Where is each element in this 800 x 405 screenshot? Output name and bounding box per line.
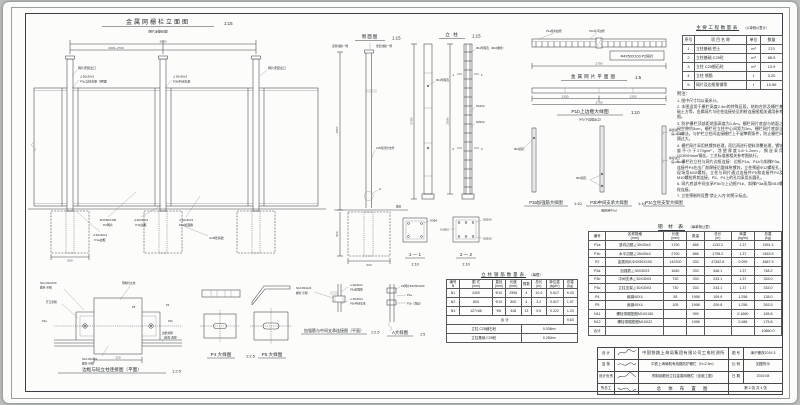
steel-header-cell: 数量: [687, 232, 704, 241]
steel-row: P1b水平边框∠30x30x327006661798.21.372463.5: [589, 249, 782, 258]
steel-table-title: 钢 材 表: [658, 225, 685, 231]
svg-text:P3a加强筋: P3a加强筋: [179, 222, 193, 227]
p3b-hole-label: Φ10圆孔: [576, 176, 587, 180]
cut-2-right: 2: [481, 147, 483, 151]
rebar-header-cell: 根数: [521, 280, 531, 289]
p1b-detail-title: P1b上边框大样图: [571, 108, 609, 115]
cut-2-left: 2: [452, 147, 454, 151]
svg-text:∠30x30x3: ∠30x30x3: [179, 218, 193, 222]
steel-row: N11螺栓带帽垫圈M10X1509990.1660165.8: [589, 310, 782, 319]
sections: N3Φ6 1 — 1 1:10 N2Φ10 N1Φ10 N2Φ10 2 — 2 …: [395, 214, 495, 272]
dim-side-height: 1800: [335, 126, 339, 133]
mesh-plan-title: 金属网片平面图: [571, 73, 617, 80]
label-n2-top: N2Φ10: [483, 218, 492, 222]
lead-signature: [615, 371, 639, 383]
rebar-row: N2800Φ1080043.20.6171.97: [447, 298, 578, 307]
page-info: 第 2 张 共 4 张: [729, 383, 783, 395]
label-n2: N2Φ10: [476, 120, 485, 124]
fig-no-label: 图 号: [729, 348, 744, 360]
connection-title: 边框与砼立柱连接图（平面）: [82, 366, 142, 373]
section-cut-marks: [457, 74, 479, 148]
steel-header-cell: 编号: [589, 232, 606, 241]
svg-text:P4: P4: [166, 303, 170, 307]
fig-no-value: 津沪栅改2019-3: [744, 348, 783, 360]
svg-text:∠30x30x3: ∠30x30x3: [93, 233, 107, 237]
stiffener-connection: N12 M10x22 螺栓·带帽 ∠30x30x3 P3a加强筋 ∠30x30x…: [294, 278, 382, 346]
steel-row: P5扁钢40X41051998209.81.256263.5: [589, 301, 782, 310]
dim-p1b-half2: 1350: [630, 94, 637, 98]
note-1: 1. 图中尺寸均以毫米计。: [677, 98, 783, 103]
quantity-row: 5网片及边框角钢等t10.86: [683, 81, 783, 90]
dim-column-h2: 2590: [446, 117, 450, 124]
svg-text:P5: P5: [132, 305, 136, 309]
steel-row: P1a竖向边框∠30x30x317006661132.21.371551.1: [589, 241, 782, 250]
rebar-table: 立柱钢筋数量表 （每根） 编号 N图 式 (mm)直径 (mm)长度 (mm)根…: [446, 272, 578, 343]
svg-text:∠30x30x3: ∠30x30x3: [173, 75, 187, 79]
label-near-side: 靠近线路一侧: [376, 44, 392, 48]
a-detail-title: A大样图: [392, 329, 409, 336]
p4-title: P4 大样图: [211, 351, 232, 358]
quantity-header-cell: 项 目 名 称: [695, 36, 747, 45]
lead-label: 设计负责: [598, 371, 615, 383]
steel-row: P3a加强筋∠30X30X31640333546.11.37748.2: [589, 267, 782, 276]
quantity-table-title: 主要工程数量表: [696, 25, 739, 31]
svg-text:P1b边框: P1b边框: [135, 222, 146, 227]
svg-text:Φ4X50X100: Φ4X50X100: [100, 218, 117, 222]
svg-text:开口垫圈: 开口垫圈: [46, 300, 57, 304]
designer-label: 设 计: [598, 348, 615, 360]
label-n3: N3Φ6: [430, 219, 438, 223]
label-n1-left: N1Φ10: [440, 228, 449, 232]
p1b-detail-subtitle: （P1b下边框反之）: [577, 117, 603, 122]
project-name: 中铁上海局既有线路防护栅栏（H=2.3m）: [639, 359, 729, 371]
svg-text:边框角钢: 边框角钢: [162, 331, 173, 335]
svg-text:P1a: P1a: [407, 293, 412, 297]
mesh-plan-scale: 1:5: [635, 75, 642, 80]
connection-labels: N11 M10x150 螺栓·带帽 预制砼立柱 开口垫圈 P5 P4 P1a P…: [40, 281, 179, 366]
label-bracket: C25现浇砼支托: [376, 146, 395, 150]
connection-scale: 1:2.5: [172, 369, 182, 374]
svg-text:P3a加强筋: P3a加强筋: [350, 288, 363, 292]
note-3: 3. 防护栅栏顶部距地面高度为1.8m，栅栏网片底部与地面之间空隙约5cm，栅栏…: [677, 121, 783, 142]
rebar-cage: [464, 44, 472, 194]
label-hole-bolt: Φ12预留孔（M10螺栓）: [476, 46, 505, 50]
notes-heading: 附注：: [677, 91, 783, 97]
svg-text:P1b（焊接）: P1b（焊接）: [407, 302, 423, 306]
rebar-row: N3127×66Φ6426135.50.2221.23: [447, 307, 578, 316]
svg-text:螺栓·带帽: 螺栓·带帽: [296, 291, 308, 295]
rebar-header-cell: 总长 (m): [532, 280, 546, 289]
quantity-table-unit: （以单侧公里计）: [743, 26, 769, 30]
quantity-header-cell: 序号: [683, 36, 695, 45]
steel-header-cell: 长度 (mm): [664, 232, 687, 241]
rebar-footer-2: 立柱基础 C25砼 0.250m³: [447, 334, 578, 343]
quantity-header-cell: 数量: [761, 36, 783, 45]
connection-detail: N11 M10x150 螺栓·带帽 预制砼立柱 开口垫圈 P5 P4 P1a P…: [36, 276, 198, 376]
quantity-row: 1立柱基础 挖土m³270: [683, 45, 783, 54]
svg-text:∠30x30x3: ∠30x30x3: [80, 75, 94, 79]
a-detail-scale: 1:5: [420, 333, 425, 337]
scale-value: 如图所示: [744, 359, 783, 371]
p1b-detail-scale: 1:10: [631, 110, 640, 115]
rebar-footer-1: 立柱 C25细石砼 0.036m³: [447, 325, 578, 334]
quantity-row: 4立柱 钢筋t3.20: [683, 72, 783, 81]
foundations: [51, 211, 275, 253]
break-symbol: [31, 142, 36, 152]
elevation-title: 金属网栅栏立面图: [126, 18, 190, 26]
dim-foundation: 600: [67, 259, 72, 263]
svg-text:螺栓·带帽: 螺栓·带帽: [40, 286, 52, 290]
date-label: 日 期: [729, 371, 744, 383]
svg-text:∠30x30x3: ∠30x30x3: [350, 297, 363, 301]
steel-row: P4扁钢40X4551998109.91.256138.0: [589, 292, 782, 301]
side-view-title: 侧面图: [362, 33, 379, 40]
quantity-table: 主要工程数量表 （以单侧公里计） 序号项 目 名 称单位数量 1立柱基础 挖土m…: [682, 16, 783, 90]
a-detail: P2网片Φ4X50X100 P1a P1b（焊接） A大样图 1:5: [378, 276, 444, 340]
section1-scale: 1:10: [411, 262, 419, 267]
side-view-scale: 1:15: [392, 36, 401, 41]
a-detail-labels: P2网片Φ4X50X100 P1a P1b（焊接）: [395, 284, 425, 306]
left-bracket: [76, 312, 94, 340]
quantity-row: 3立柱 C25细石砼m³13.9: [683, 63, 783, 72]
quantity-row: 2立柱基础 C25砼m³85.9: [683, 54, 783, 63]
label-n2-bot: N2Φ10: [483, 237, 492, 241]
sheet-name: 总 体 布 置 图: [639, 383, 729, 395]
svg-text:∠30x30x3: ∠30x30x3: [350, 283, 363, 287]
p3-details: Φ10圆孔 P3a加强筋大样图 1:10 Φ10圆孔 P3b中间支承大样图 （结…: [512, 122, 688, 216]
steel-row: 合计10860.0: [589, 327, 782, 336]
svg-text:P3c立柱支架（预埋）: P3c立柱支架（预埋）: [80, 79, 109, 84]
steel-header-cell: 总重 (kg): [754, 232, 781, 241]
steel-row: P3b中间支承∠30X30X3730333243.11.37333.0: [589, 275, 782, 284]
scale-label: 比 例: [729, 359, 744, 371]
rebar-table-unit: （每根）: [529, 273, 543, 277]
notes-block: 附注： 1. 图中尺寸均以毫米计。 2. 本图适用于栅栏高度2.3m的特殊区段，…: [677, 91, 783, 222]
rebar-header-cell: 长度 (mm): [505, 280, 521, 289]
checker-label: 复 核: [598, 359, 615, 371]
rebar-header-cell: 单位重 (kg/m): [546, 280, 563, 289]
label-p1b-frame: P1b水平边框: [589, 29, 605, 33]
label-ground: 路肩: [396, 205, 402, 209]
svg-text:P3b中间支承: P3b中间支承: [350, 302, 366, 306]
date-value: 2019.08: [744, 371, 783, 383]
stiffener-title: 加强筋与中间支承连接图（平面）: [304, 327, 364, 333]
p3a-scale: 1:10: [574, 201, 583, 206]
p45-scale: 1:2.5: [246, 354, 256, 359]
svg-text:P1a: P1a: [42, 319, 47, 323]
quantity-header-cell: 单位: [747, 36, 761, 45]
subject-name: 预制钢筋砼立柱金属网栅栏（含施工图）: [639, 371, 729, 383]
label-hole: Φ12预留孔: [436, 78, 450, 82]
steel-table: 钢 材 表 （每单侧公里） 编号名称规格 (mm)长度 (mm)数量总长 (m)…: [588, 223, 782, 336]
dim-side-depth: 500: [335, 231, 339, 236]
p3b-title: P3b中间支承大样图: [590, 199, 628, 206]
angle-pictorial: [252, 286, 290, 305]
svg-text:（双面·满焊）: （双面·满焊）: [162, 336, 179, 340]
p4-plate: [200, 310, 240, 342]
cut-1-right: 1: [481, 73, 483, 77]
steel-row: N12螺栓带帽垫圈M10X2219980.088175.8: [589, 318, 782, 327]
svg-text:C25砼基础: C25砼基础: [209, 235, 224, 240]
dim-column-h1: 2750: [410, 117, 414, 124]
note-2: 2. 本图适用于栅栏高度2.3m的特殊区段，结构台阶及栅栏基础土方等，金属网片与…: [677, 104, 783, 120]
dim-panel: 2400~2700: [108, 46, 124, 50]
dim-side-width: 600: [366, 263, 371, 267]
p3b-subtitle: （结构参P3c）: [599, 208, 619, 213]
dim-mesh-total: 2700: [596, 62, 603, 66]
label-p1a-frame: P1a竖向边框: [546, 29, 562, 33]
p3a-hole-label: Φ10圆孔: [514, 147, 525, 151]
p5-title: P5 大样图: [262, 351, 283, 358]
elevation-subtitle: （网片涂塑处理）: [146, 29, 170, 34]
note-6: 6. 网片底部中间支承P3b与上边框P1b、斜撑P3a采用M10螺栓连接。: [677, 181, 783, 191]
note-4: 4. 栅栏网片采用热镀锌处理，而后再进行塑料涂覆处理，镀锌量不小于270g/m²…: [677, 143, 783, 159]
steel-header-cell: 名称规格 (mm): [606, 232, 664, 241]
column-title: 立 柱: [445, 31, 458, 38]
elevation-view: 金属网栅栏立面图 1:15 （网片涂塑处理） 3000 2400~2700: [28, 14, 328, 279]
p4-p5-details: P4 大样图 1:2.5 P5 大样图: [198, 276, 298, 378]
drawing-sheet-page: 金属网栅栏立面图 1:15 （网片涂塑处理） 3000 2400~2700: [0, 0, 800, 405]
p3a-title: P3a加强筋大样图: [529, 199, 562, 206]
rebar-row: N12400Φ102596410.40.6176.43: [447, 289, 578, 298]
svg-text:P1b: P1b: [168, 319, 173, 323]
section2-title: 2 — 2: [460, 252, 473, 257]
rebar-header-cell: 编号 N: [447, 280, 460, 289]
svg-text:∠30x30x3: ∠30x30x3: [134, 218, 148, 222]
company-name: 中国铁路上海局集团有限公司工电检测所: [639, 348, 729, 360]
section1-title: 1 — 1: [409, 252, 422, 257]
column-view: 立 柱 1:15 Φ12预留孔 Φ12预留孔（M10螺栓） N1Φ10 N2Φ1…: [408, 28, 496, 216]
steel-row: P2金属网片Φ4X50X10014220033347352.60.0994687…: [589, 258, 782, 267]
svg-text:N11 M10x150: N11 M10x150: [40, 281, 57, 285]
dim-total: 3000: [160, 40, 167, 44]
mesh-plan: P1a竖向边框 P1b水平边框 Φ4X50X100 P2网片 2700 金属网片…: [524, 26, 674, 122]
steel-row: P3c立柱支架∠30X30X3730333243.11.37333.0: [589, 284, 782, 293]
svg-text:N12 M10x22: N12 M10x22: [296, 286, 312, 290]
svg-text:P2网片Φ4X50X100: P2网片Φ4X50X100: [401, 284, 425, 288]
rebar-header-cell: 图 式 (mm): [460, 280, 493, 289]
checker-signature: [615, 359, 639, 371]
title-block: 设 计 中国铁路上海局集团有限公司工电检测所 图 号 津沪栅改2019-3 复 …: [597, 347, 782, 391]
svg-text:N12 M10x22: N12 M10x22: [82, 357, 98, 361]
chief-label: 所总工: [598, 383, 615, 395]
label-n1: N1Φ10: [476, 104, 485, 108]
rebar-total-row: 合 计 9.63: [447, 316, 578, 325]
svg-text:P2网片: P2网片: [103, 222, 113, 227]
stiffener-labels: N12 M10x22 螺栓·带帽 ∠30x30x3 P3a加强筋 ∠30x30x…: [296, 283, 366, 306]
svg-text:P1a边框: P1a边框: [94, 237, 105, 242]
cut-1-left: 1: [452, 73, 454, 77]
column-scale: 1:15: [472, 34, 481, 39]
dim-p1b-half1: 1350: [562, 94, 569, 98]
section2-scale: 1:10: [462, 262, 470, 267]
svg-text:网片安装企口: 网片安装企口: [78, 65, 96, 70]
dim-conn: 120: [115, 356, 120, 360]
label-far-side: 远离线路一侧: [332, 44, 348, 48]
note-7: 7. 立柱预制时设置“禁止入内”的警示标志。: [677, 193, 783, 198]
steel-header-cell: 总长 (m): [704, 232, 731, 241]
note-5: 5. 栅栏砼立柱与网片边框连接：边框P1a、P1b与斜撑P3a、连接件P4在出厂…: [677, 159, 783, 180]
svg-text:螺栓·带帽: 螺栓·带帽: [82, 362, 94, 366]
svg-text:预制砼立柱: 预制砼立柱: [122, 281, 136, 285]
steel-table-unit: （每单侧公里）: [688, 225, 712, 229]
rebar-header-cell: 直径 (mm): [492, 280, 505, 289]
svg-text:网片安装企口: 网片安装企口: [268, 65, 286, 70]
rebar-table-title: 立柱钢筋数量表: [481, 272, 526, 278]
designer-signature: [615, 348, 639, 360]
chief-signature: [615, 383, 639, 395]
svg-text:P3b中间支承: P3b中间支承: [173, 79, 190, 84]
detail-marker-a: A: [379, 187, 381, 191]
steel-header-cell: 单重 (kg/m): [731, 232, 754, 241]
rebar-header-cell: 总重 (kg): [563, 280, 577, 289]
mesh-spec-box: Φ4X50X100 P2网片: [620, 53, 653, 58]
elevation-scale: 1:15: [224, 21, 233, 26]
dim-p1b-total: 2700: [596, 100, 603, 104]
p5-plate: [250, 308, 292, 344]
